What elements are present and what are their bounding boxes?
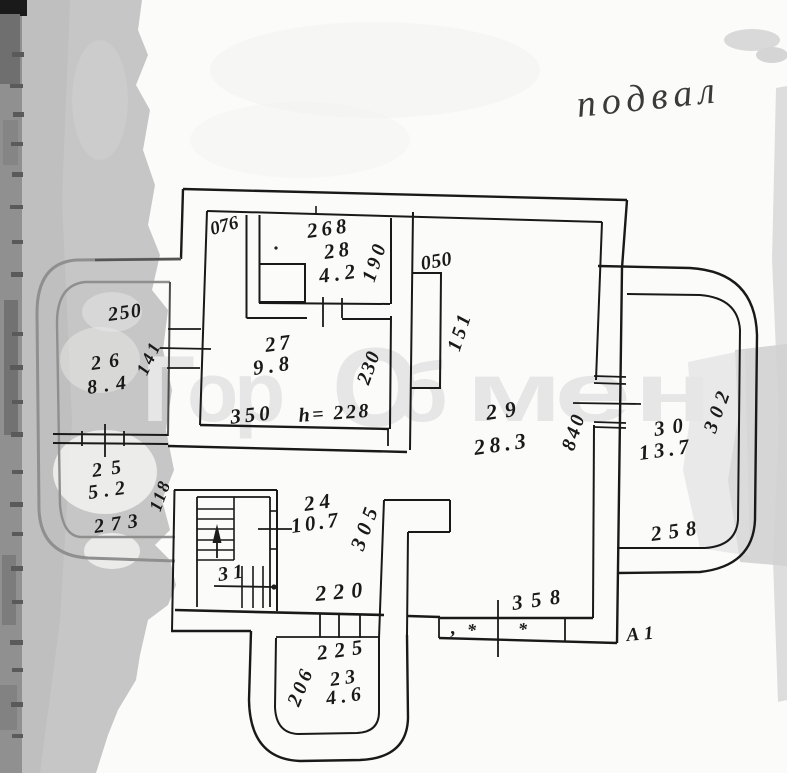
svg-text:220: 220 (313, 576, 370, 606)
svg-text:*: * (518, 619, 528, 639)
svg-text:350: 350 (228, 400, 275, 429)
svg-text:м: м (466, 346, 562, 440)
svg-text:*: * (467, 620, 477, 640)
svg-text:,: , (450, 617, 456, 639)
svg-text:А 1: А 1 (625, 623, 655, 646)
svg-text:31: 31 (216, 560, 250, 586)
